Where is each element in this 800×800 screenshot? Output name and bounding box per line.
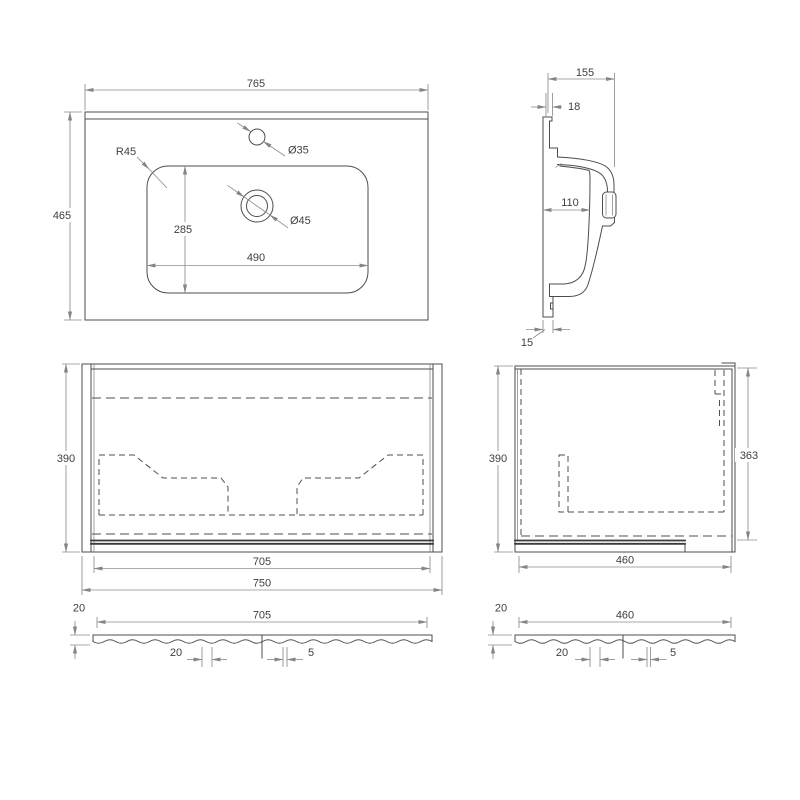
ledge bbox=[603, 218, 615, 226]
dim-basin-width-label: 765 bbox=[247, 78, 265, 90]
leader-line bbox=[533, 330, 545, 339]
dim-side-height-label: 390 bbox=[489, 453, 507, 465]
dim-panel-width-label: 705 bbox=[253, 610, 271, 622]
dim-bowl-inner-label: 110 bbox=[561, 197, 579, 209]
hidden-siphon-channel bbox=[559, 455, 568, 512]
extension-lines bbox=[70, 635, 90, 645]
leader-line bbox=[149, 169, 167, 188]
technical-drawing-canvas: 765 465 R45 Ø35 285 Ø45 490 bbox=[0, 0, 800, 800]
groove-tick-lines bbox=[283, 647, 287, 667]
dim-side-depth-label: 460 bbox=[616, 555, 634, 567]
dim-front-inner-width-label: 705 bbox=[253, 556, 271, 568]
top-edges bbox=[515, 366, 735, 369]
hidden-wall-bracket bbox=[715, 370, 724, 394]
dim-front-width-label: 750 bbox=[253, 578, 271, 590]
groove-tick-lines bbox=[647, 647, 651, 667]
wall-foot bbox=[543, 284, 553, 317]
bowl-inner-wall bbox=[550, 166, 591, 284]
dim-groove-width-label: 5 bbox=[308, 647, 314, 659]
bowl-outer-wall bbox=[550, 226, 603, 297]
dim-rim-thickness-label: 18 bbox=[568, 101, 580, 113]
cabinet-front-view: 390 705 750 bbox=[53, 364, 442, 595]
dim-groove-offset-label: 20 bbox=[556, 647, 568, 659]
front-edge-inner-lines bbox=[606, 195, 613, 216]
dim-groove-offset-label: 20 bbox=[170, 647, 182, 659]
drawing-page: 765 465 R45 Ø35 285 Ø45 490 bbox=[0, 0, 800, 800]
dim-side-inner-height-label: 363 bbox=[740, 450, 758, 462]
dim-bowl-width-label: 490 bbox=[247, 252, 265, 264]
panel-break-wavy-edge bbox=[515, 640, 735, 644]
leader-line bbox=[270, 215, 288, 228]
extension-lines bbox=[543, 320, 553, 333]
leader-line bbox=[238, 123, 251, 132]
cabinet-side-view: 390 363 460 bbox=[485, 363, 763, 573]
front-panel-section-view: 705 20 20 5 bbox=[70, 603, 432, 668]
dim-bowl-depth-label: 285 bbox=[174, 224, 192, 236]
leader-line bbox=[228, 185, 245, 197]
rim-top-surface bbox=[558, 157, 615, 192]
backsplash-wall bbox=[543, 117, 552, 317]
dim-panel-thickness-label: 20 bbox=[495, 603, 507, 615]
dim-basin-depth-label: 465 bbox=[53, 210, 71, 222]
extension-lines bbox=[488, 635, 512, 645]
front-edge-detail bbox=[603, 192, 617, 218]
cabinet-front-outline bbox=[82, 364, 442, 552]
back-panel-edges bbox=[732, 363, 735, 552]
panel-outline bbox=[515, 635, 735, 642]
groove-tick-lines bbox=[202, 647, 212, 667]
basin-section-view: 155 18 110 15 bbox=[521, 67, 616, 349]
dim-panel-thickness-label: 20 bbox=[73, 603, 85, 615]
bottom-panel-edge bbox=[91, 541, 433, 544]
hidden-drawer-cutout-left bbox=[99, 455, 228, 515]
leader-line bbox=[263, 141, 285, 156]
side-panel-edges bbox=[91, 364, 433, 552]
dim-section-depth-label: 155 bbox=[576, 67, 594, 79]
bottom-panel-edge bbox=[515, 541, 685, 544]
side-panel-section-view: 460 20 20 5 bbox=[488, 603, 735, 668]
leader-line bbox=[137, 157, 149, 169]
basin-top-view: 765 465 R45 Ø35 285 Ø45 490 bbox=[49, 78, 428, 320]
rim-step bbox=[550, 148, 558, 157]
dim-wall-thickness-label: 15 bbox=[521, 337, 533, 349]
faucet-hole bbox=[249, 129, 265, 145]
dim-drain-hole-label: Ø45 bbox=[290, 215, 311, 227]
hidden-drawer-cutout-right bbox=[297, 455, 423, 515]
dim-panel-width-label: 460 bbox=[616, 610, 634, 622]
dim-faucet-hole-label: Ø35 bbox=[288, 145, 309, 157]
dim-corner-radius-label: R45 bbox=[116, 146, 136, 158]
dim-groove-width-label: 5 bbox=[670, 647, 676, 659]
bottom-outer-edge bbox=[515, 544, 735, 552]
groove-tick-lines bbox=[590, 647, 600, 667]
extension-lines bbox=[546, 93, 553, 116]
dim-front-height-label: 390 bbox=[57, 453, 75, 465]
side-panel-inner-edges bbox=[94, 364, 430, 552]
